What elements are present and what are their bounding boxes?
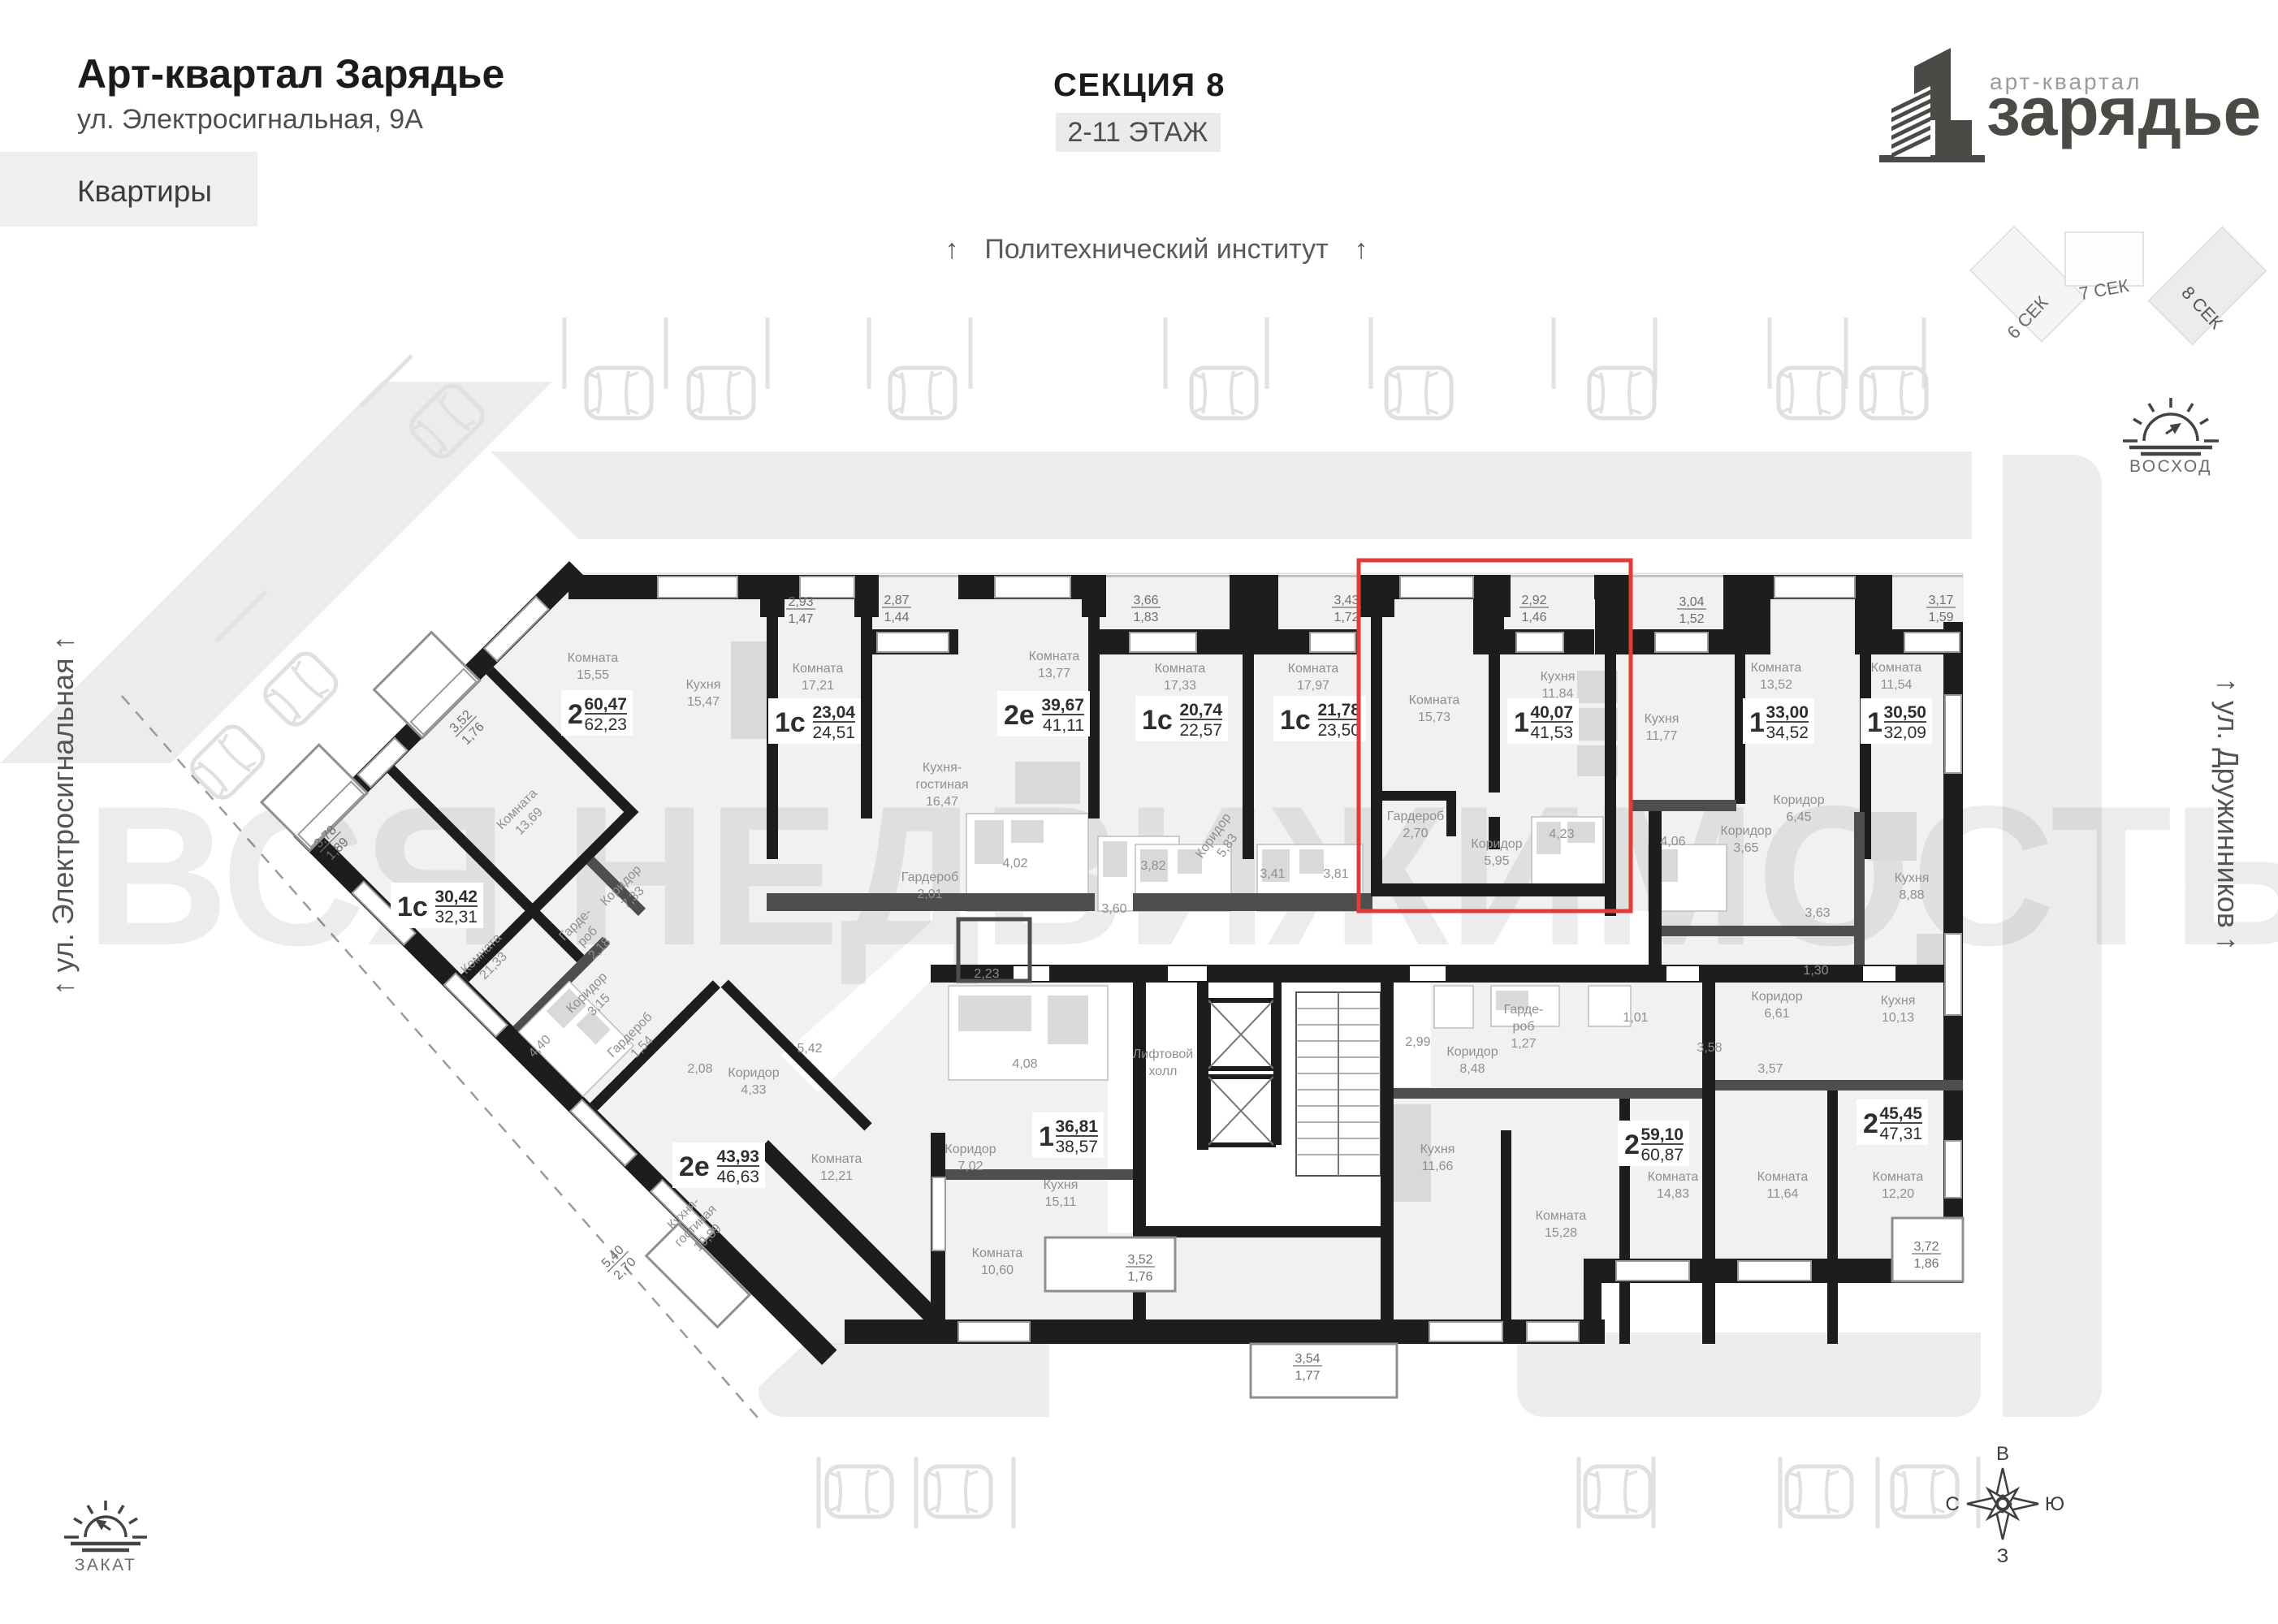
svg-text:С: С xyxy=(1945,1493,1959,1515)
svg-text:7,02: 7,02 xyxy=(957,1160,983,1173)
svg-text:3,17: 3,17 xyxy=(1928,594,1953,607)
svg-text:15,47: 15,47 xyxy=(687,695,720,709)
svg-text:Кухня: Кухня xyxy=(1645,712,1679,726)
svg-text:↑: ↑ xyxy=(945,234,959,265)
svg-text:3,60: 3,60 xyxy=(1101,902,1126,916)
svg-text:17,21: 17,21 xyxy=(802,679,834,693)
svg-text:12,20: 12,20 xyxy=(1882,1187,1914,1201)
svg-text:14,83: 14,83 xyxy=(1657,1187,1689,1201)
svg-text:10,13: 10,13 xyxy=(1882,1011,1914,1025)
svg-text:10,60: 10,60 xyxy=(981,1263,1014,1277)
svg-text:Лифтовой: Лифтовой xyxy=(1133,1047,1193,1061)
svg-text:60,47: 60,47 xyxy=(584,695,627,714)
svg-text:15,28: 15,28 xyxy=(1545,1226,1577,1240)
svg-text:Комната: Комната xyxy=(1757,1170,1809,1184)
svg-text:46,63: 46,63 xyxy=(716,1168,759,1186)
svg-text:16,47: 16,47 xyxy=(926,795,958,809)
svg-text:1,77: 1,77 xyxy=(1295,1369,1320,1383)
svg-text:Кухня: Кухня xyxy=(1420,1142,1455,1156)
svg-text:1,27: 1,27 xyxy=(1511,1037,1536,1051)
svg-text:Кухня: Кухня xyxy=(686,678,721,692)
svg-text:3,04: 3,04 xyxy=(1679,595,1704,609)
svg-text:зарядье: зарядье xyxy=(1986,73,2261,149)
svg-text:ул. Электросигнальная, 9А: ул. Электросигнальная, 9А xyxy=(77,104,423,135)
svg-text:СЕКЦИЯ 8: СЕКЦИЯ 8 xyxy=(1053,67,1225,103)
svg-text:2-11 ЭТАЖ: 2-11 ЭТАЖ xyxy=(1067,117,1208,148)
svg-text:Коридор: Коридор xyxy=(944,1142,996,1156)
svg-text:Комната: Комната xyxy=(1155,662,1206,676)
svg-text:2: 2 xyxy=(1863,1108,1878,1139)
svg-text:45,45: 45,45 xyxy=(1879,1104,1922,1123)
svg-text:17,97: 17,97 xyxy=(1297,679,1329,693)
svg-text:Кухня-: Кухня- xyxy=(923,761,962,775)
svg-text:Коридор: Коридор xyxy=(1751,990,1802,1004)
svg-text:Политехнический институт: Политехнический институт xyxy=(984,234,1328,265)
svg-text:Гардероб: Гардероб xyxy=(901,870,958,884)
svg-text:3,82: 3,82 xyxy=(1140,859,1165,873)
svg-text:1,47: 1,47 xyxy=(788,612,813,626)
svg-text:1,44: 1,44 xyxy=(884,611,909,624)
svg-text:3,63: 3,63 xyxy=(1805,906,1830,920)
svg-text:2е: 2е xyxy=(1004,700,1035,731)
svg-text:↑ ул. Дружинников ↑: ↑ ул. Дружинников ↑ xyxy=(2211,678,2245,951)
svg-text:34,52: 34,52 xyxy=(1766,723,1809,742)
svg-text:Гарде-: Гарде- xyxy=(1504,1003,1544,1017)
svg-text:3,65: 3,65 xyxy=(1733,841,1758,855)
svg-text:1,52: 1,52 xyxy=(1679,612,1704,626)
svg-text:6,61: 6,61 xyxy=(1764,1007,1789,1021)
svg-text:11,54: 11,54 xyxy=(1881,678,1913,692)
svg-text:Кухня: Кухня xyxy=(1541,670,1576,684)
svg-text:Комната: Комната xyxy=(811,1152,862,1166)
svg-text:21,78: 21,78 xyxy=(1317,701,1360,719)
svg-text:39,67: 39,67 xyxy=(1041,696,1084,715)
svg-text:6,45: 6,45 xyxy=(1786,810,1811,824)
svg-text:1: 1 xyxy=(1039,1121,1054,1152)
svg-text:59,10: 59,10 xyxy=(1640,1125,1684,1144)
svg-text:Комната: Комната xyxy=(1873,1170,1924,1184)
svg-text:Кухня: Кухня xyxy=(1044,1178,1078,1192)
svg-text:Коридор: Коридор xyxy=(728,1066,779,1080)
svg-text:11,77: 11,77 xyxy=(1646,729,1678,743)
svg-text:32,09: 32,09 xyxy=(1883,723,1926,742)
svg-text:Комната: Комната xyxy=(568,651,619,665)
svg-text:↑ ул. Электросигнальная ↑: ↑ ул. Электросигнальная ↑ xyxy=(46,636,80,996)
svg-text:1,72: 1,72 xyxy=(1334,611,1359,624)
svg-text:↑: ↑ xyxy=(1355,234,1368,265)
svg-text:5,42: 5,42 xyxy=(797,1042,822,1056)
svg-text:15,11: 15,11 xyxy=(1045,1195,1077,1209)
svg-text:Комната: Комната xyxy=(793,662,844,676)
svg-text:15,55: 15,55 xyxy=(577,668,609,682)
svg-text:32,31: 32,31 xyxy=(434,908,478,926)
svg-text:1,83: 1,83 xyxy=(1133,611,1158,624)
svg-text:Коридор: Коридор xyxy=(1720,824,1771,838)
svg-text:Комната: Комната xyxy=(1751,661,1802,675)
svg-text:36,81: 36,81 xyxy=(1055,1117,1098,1136)
svg-text:2,01: 2,01 xyxy=(917,888,942,901)
svg-text:1с: 1с xyxy=(397,892,428,922)
svg-text:3,72: 3,72 xyxy=(1913,1240,1939,1254)
svg-text:1,01: 1,01 xyxy=(1623,1011,1648,1025)
svg-text:1с: 1с xyxy=(1280,705,1311,736)
svg-text:38,57: 38,57 xyxy=(1055,1138,1098,1156)
svg-text:Комната: Комната xyxy=(972,1246,1023,1260)
svg-text:4,23: 4,23 xyxy=(1549,827,1574,841)
svg-text:11,64: 11,64 xyxy=(1767,1187,1799,1201)
svg-text:4,33: 4,33 xyxy=(741,1083,766,1097)
svg-text:1,46: 1,46 xyxy=(1521,611,1546,624)
svg-text:Комната: Комната xyxy=(1029,650,1080,663)
svg-text:ЗАКАТ: ЗАКАТ xyxy=(75,1556,137,1574)
svg-text:3,43: 3,43 xyxy=(1334,594,1359,607)
svg-text:8,88: 8,88 xyxy=(1899,888,1924,902)
svg-text:4,08: 4,08 xyxy=(1012,1057,1037,1071)
svg-text:15,73: 15,73 xyxy=(1418,710,1450,724)
svg-text:1,76: 1,76 xyxy=(1127,1270,1152,1284)
svg-text:2,87: 2,87 xyxy=(884,594,909,607)
svg-text:Гардероб: Гардероб xyxy=(1387,810,1444,823)
svg-text:ВОСХОД: ВОСХОД xyxy=(2129,457,2212,476)
svg-text:24,51: 24,51 xyxy=(812,723,855,742)
svg-text:2е: 2е xyxy=(679,1151,710,1182)
svg-text:1с: 1с xyxy=(775,707,806,738)
svg-text:холл: холл xyxy=(1148,1065,1177,1078)
svg-text:Коридор: Коридор xyxy=(1446,1045,1498,1059)
svg-text:33,00: 33,00 xyxy=(1766,703,1809,722)
svg-text:2,92: 2,92 xyxy=(1521,594,1546,607)
svg-text:13,77: 13,77 xyxy=(1038,667,1070,680)
svg-text:13,52: 13,52 xyxy=(1760,678,1792,692)
svg-text:23,50: 23,50 xyxy=(1317,721,1360,740)
svg-text:2: 2 xyxy=(1624,1129,1640,1160)
svg-text:4,06: 4,06 xyxy=(1660,835,1685,849)
svg-text:гостиная: гостиная xyxy=(915,778,968,792)
svg-text:3,66: 3,66 xyxy=(1133,594,1158,607)
svg-text:1,59: 1,59 xyxy=(1928,611,1953,624)
svg-text:1: 1 xyxy=(1867,707,1882,738)
svg-text:47,31: 47,31 xyxy=(1879,1125,1922,1143)
svg-text:40,07: 40,07 xyxy=(1530,703,1573,722)
svg-text:Комната: Комната xyxy=(1648,1170,1699,1184)
svg-text:Квартиры: Квартиры xyxy=(77,175,212,208)
svg-text:1: 1 xyxy=(1749,707,1765,738)
svg-text:В: В xyxy=(1996,1443,2009,1465)
svg-text:Арт-квартал Зарядье: Арт-квартал Зарядье xyxy=(77,51,504,97)
svg-text:Ю: Ю xyxy=(2045,1493,2064,1515)
svg-text:3,41: 3,41 xyxy=(1260,867,1285,881)
svg-text:41,11: 41,11 xyxy=(1043,716,1084,735)
svg-text:1: 1 xyxy=(1514,707,1529,738)
svg-text:2,99: 2,99 xyxy=(1405,1035,1430,1049)
svg-text:Комната: Комната xyxy=(1871,661,1922,675)
svg-text:20,74: 20,74 xyxy=(1179,701,1222,719)
svg-text:30,42: 30,42 xyxy=(434,888,478,906)
svg-text:Коридор: Коридор xyxy=(1471,837,1522,851)
svg-text:2: 2 xyxy=(568,699,583,730)
svg-text:30,50: 30,50 xyxy=(1883,703,1926,722)
svg-text:2,08: 2,08 xyxy=(687,1062,712,1076)
svg-text:60,87: 60,87 xyxy=(1640,1146,1684,1164)
svg-text:2,70: 2,70 xyxy=(1403,827,1428,840)
svg-text:Комната: Комната xyxy=(1409,693,1460,707)
svg-text:3,57: 3,57 xyxy=(1757,1062,1783,1076)
svg-text:4,02: 4,02 xyxy=(1002,857,1027,870)
svg-text:43,93: 43,93 xyxy=(716,1147,759,1166)
svg-text:62,23: 62,23 xyxy=(584,715,627,734)
svg-text:3,81: 3,81 xyxy=(1323,867,1348,881)
svg-text:41,53: 41,53 xyxy=(1530,723,1573,742)
svg-text:22,57: 22,57 xyxy=(1179,721,1222,740)
svg-text:Коридор: Коридор xyxy=(1773,793,1824,807)
svg-text:роб: роб xyxy=(1513,1020,1535,1034)
svg-text:2,93: 2,93 xyxy=(788,595,813,609)
svg-text:11,66: 11,66 xyxy=(1422,1160,1454,1173)
svg-text:3,58: 3,58 xyxy=(1697,1041,1722,1055)
svg-text:2,23: 2,23 xyxy=(974,967,999,981)
svg-text:Кухня: Кухня xyxy=(1881,994,1916,1008)
svg-text:8,48: 8,48 xyxy=(1459,1062,1485,1076)
svg-text:Комната: Комната xyxy=(1536,1209,1587,1223)
svg-text:3,54: 3,54 xyxy=(1295,1352,1320,1366)
svg-text:1с: 1с xyxy=(1142,705,1173,736)
svg-text:5,95: 5,95 xyxy=(1484,854,1509,868)
svg-text:Комната: Комната xyxy=(1288,662,1339,676)
svg-text:1,30: 1,30 xyxy=(1803,964,1828,978)
svg-text:3,52: 3,52 xyxy=(1127,1253,1152,1267)
svg-text:З: З xyxy=(1997,1545,2009,1567)
svg-text:Кухня: Кухня xyxy=(1895,871,1930,885)
svg-text:17,33: 17,33 xyxy=(1164,679,1196,693)
svg-text:12,21: 12,21 xyxy=(820,1169,853,1183)
svg-text:23,04: 23,04 xyxy=(812,703,855,722)
svg-text:1,86: 1,86 xyxy=(1913,1257,1939,1271)
